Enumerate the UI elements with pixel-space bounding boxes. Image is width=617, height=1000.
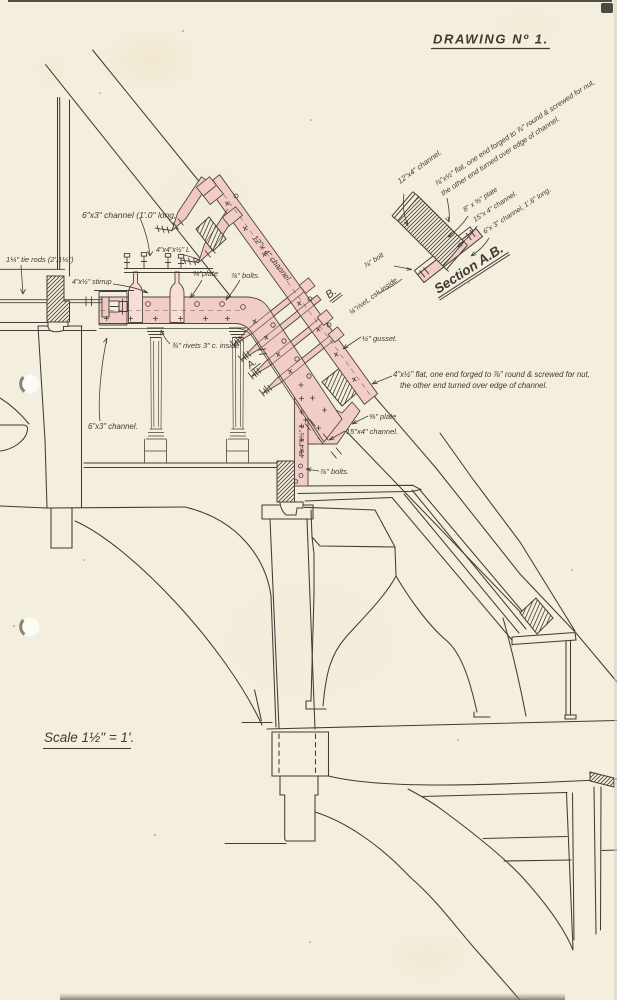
svg-text:1¼" tie rods (2'.1½"): 1¼" tie rods (2'.1½") — [6, 255, 74, 264]
svg-text:⅞" bolts.: ⅞" bolts. — [320, 467, 349, 476]
svg-text:4"x4"x½" L: 4"x4"x½" L — [156, 246, 190, 254]
svg-text:Scale 1½" = 1'.: Scale 1½" = 1'. — [44, 730, 134, 745]
svg-text:6"x3" channel.: 6"x3" channel. — [88, 422, 138, 431]
svg-text:DRAWING Nº 1.: DRAWING Nº 1. — [433, 32, 549, 47]
svg-text:⅝"plate: ⅝"plate — [193, 269, 218, 278]
svg-text:15"x4" channel.: 15"x4" channel. — [346, 427, 398, 436]
svg-text:4"x½" flat, one end forged to: 4"x½" flat, one end forged to ⅞" round &… — [393, 370, 590, 379]
svg-text:the other end turned over edge: the other end turned over edge of channe… — [400, 381, 547, 390]
svg-text:½" gusset.: ½" gusset. — [362, 334, 397, 343]
svg-text:⅝" plate: ⅝" plate — [369, 412, 396, 421]
svg-text:4"x4"x½" L: 4"x4"x½" L — [298, 424, 306, 458]
svg-text:⅞" bolts.: ⅞" bolts. — [231, 271, 260, 280]
svg-text:¾" rivets 3" c. inside: ¾" rivets 3" c. inside — [172, 341, 239, 350]
svg-text:6"x3" channel (1'.0" long,: 6"x3" channel (1'.0" long, — [82, 210, 176, 220]
svg-text:4"x½" stirrup: 4"x½" stirrup — [72, 278, 112, 286]
